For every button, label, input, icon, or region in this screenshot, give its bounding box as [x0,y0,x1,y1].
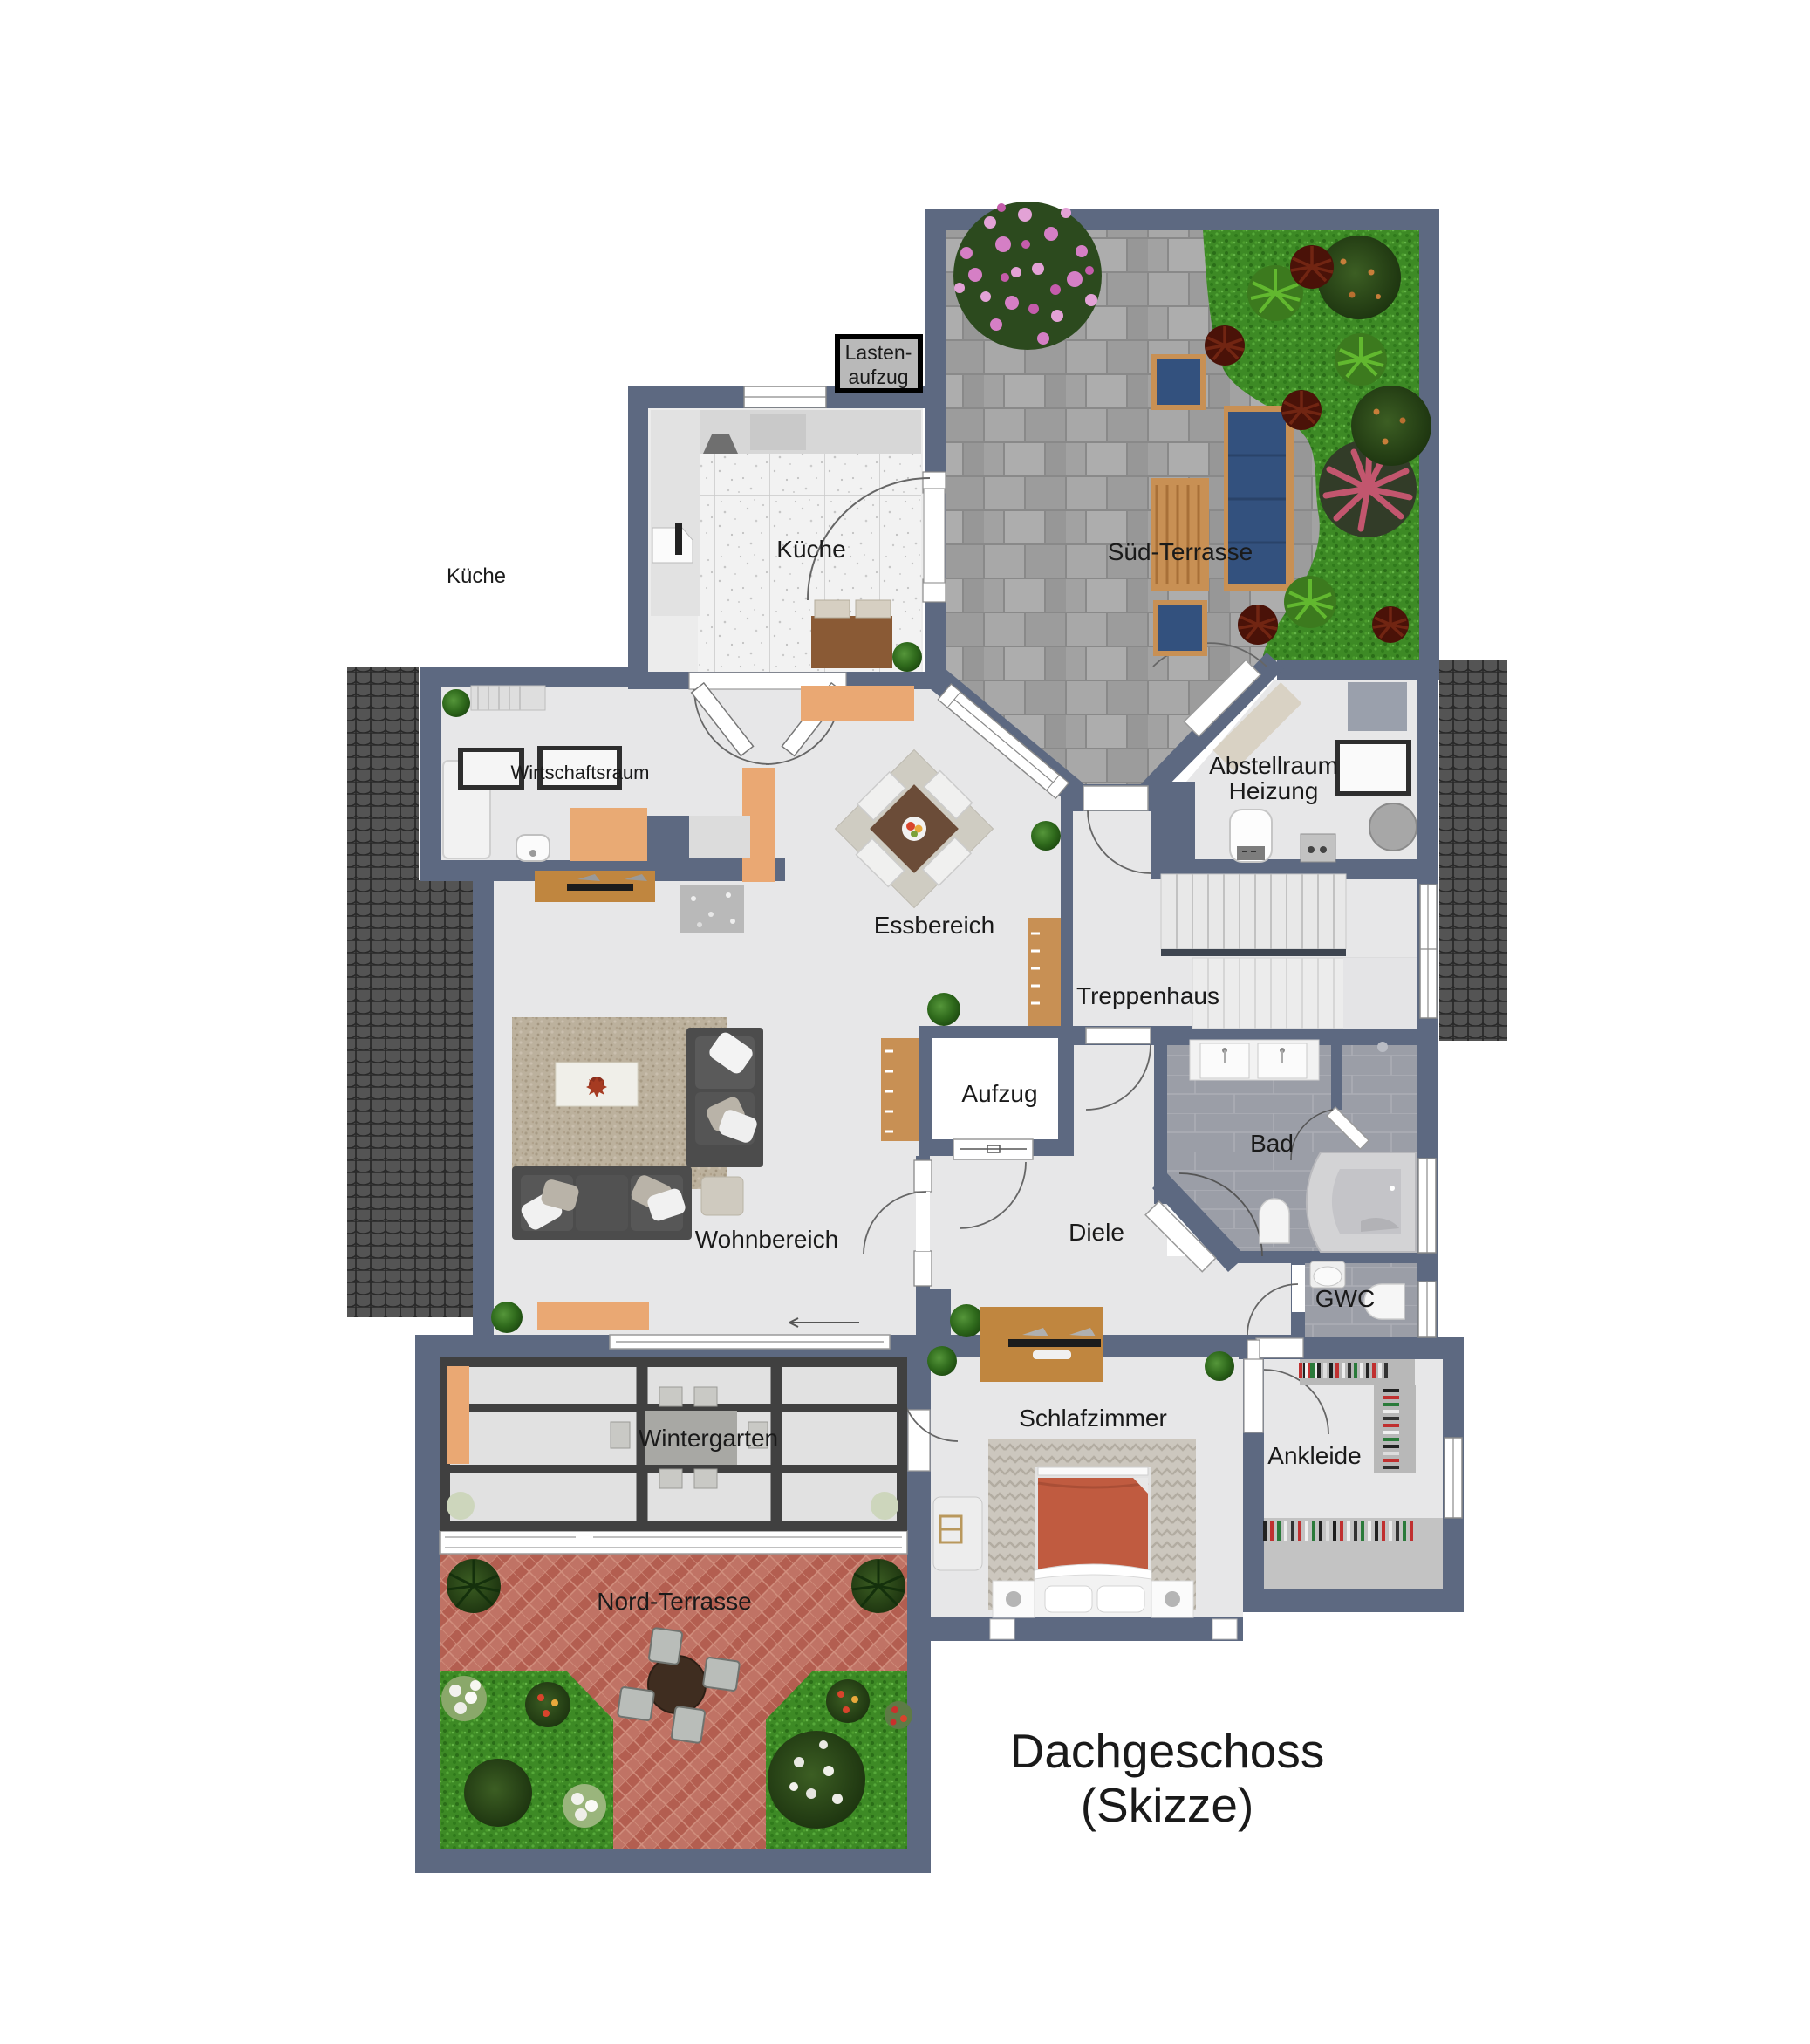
svg-text:aufzug: aufzug [848,366,908,388]
svg-text:Küche: Küche [776,536,845,563]
svg-text:Treppenhaus: Treppenhaus [1076,982,1219,1009]
svg-text:Heizung: Heizung [1229,777,1319,804]
svg-text:GWC: GWC [1315,1285,1375,1312]
svg-text:Nord-Terrasse: Nord-Terrasse [597,1588,751,1615]
svg-text:Aufzug: Aufzug [961,1080,1037,1107]
svg-text:Schlafzimmer: Schlafzimmer [1019,1405,1167,1432]
svg-text:Essbereich: Essbereich [874,912,995,939]
svg-text:Küche: Küche [447,564,506,588]
svg-text:Süd-Terrasse: Süd-Terrasse [1108,538,1253,565]
svg-text:(Skizze): (Skizze) [1081,1778,1254,1832]
svg-text:Bad: Bad [1250,1130,1294,1157]
svg-text:Abstellraum: Abstellraum [1209,752,1338,779]
svg-text:Lasten-: Lasten- [845,341,912,364]
svg-text:Diele: Diele [1069,1219,1124,1246]
svg-text:Wohnbereich: Wohnbereich [695,1226,838,1253]
svg-text:Wintergarten: Wintergarten [639,1425,778,1452]
svg-text:Wirtschaftsraum: Wirtschaftsraum [511,762,650,783]
svg-text:Dachgeschoss: Dachgeschoss [1010,1724,1325,1778]
svg-text:Ankleide: Ankleide [1267,1442,1361,1469]
